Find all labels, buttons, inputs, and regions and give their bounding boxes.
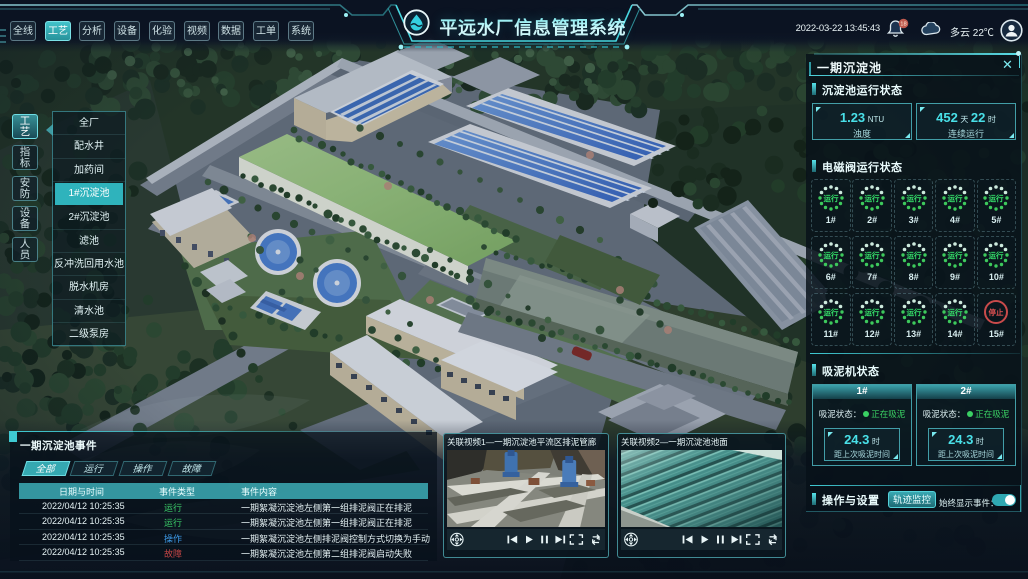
svg-text:18: 18 (900, 22, 906, 28)
